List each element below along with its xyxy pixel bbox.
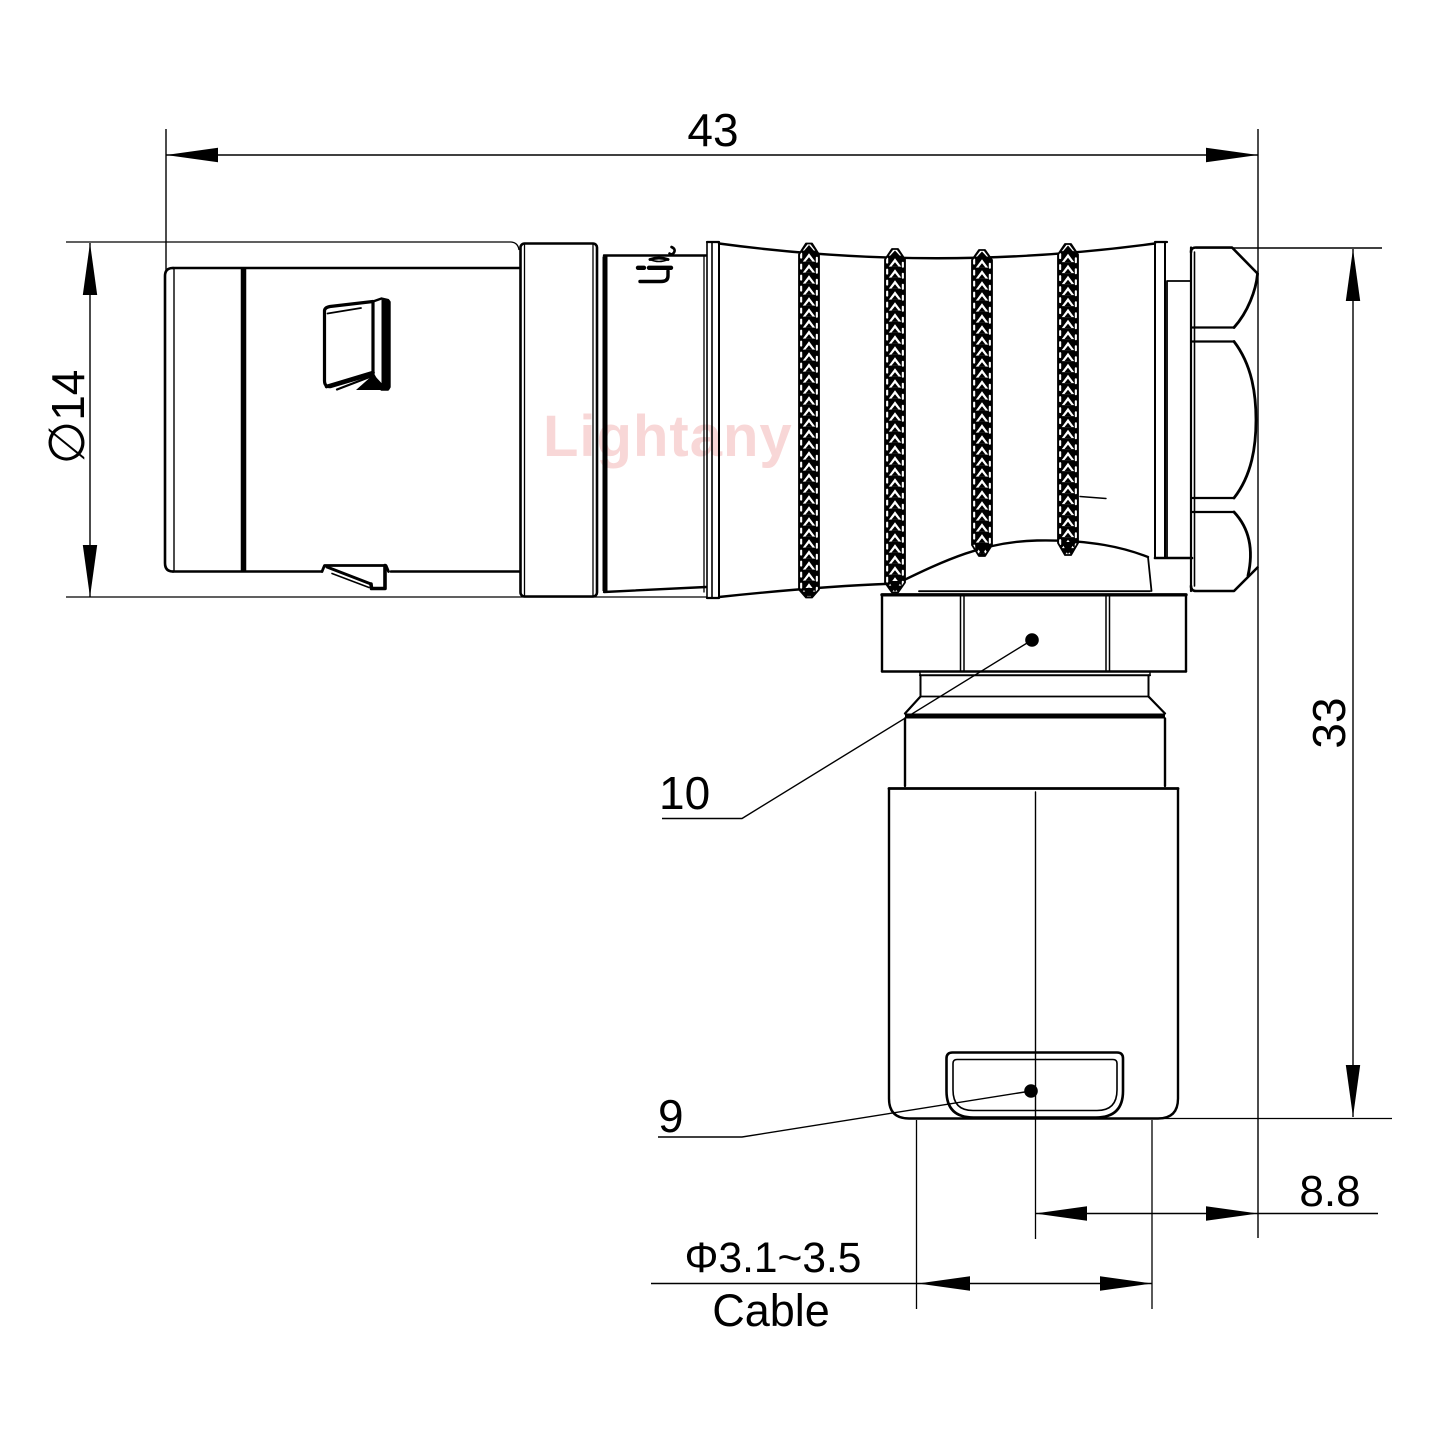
svg-text:10: 10 <box>659 767 710 819</box>
svg-text:∅14: ∅14 <box>39 370 95 465</box>
svg-text:Cable: Cable <box>712 1285 830 1336</box>
svg-text:Φ3.1~3.5: Φ3.1~3.5 <box>685 1235 862 1282</box>
svg-text:9: 9 <box>658 1090 684 1142</box>
svg-text:Lightany: Lightany <box>543 404 793 469</box>
svg-text:43: 43 <box>687 104 738 156</box>
svg-text:8.8: 8.8 <box>1299 1167 1360 1216</box>
svg-text:33: 33 <box>1303 697 1355 748</box>
